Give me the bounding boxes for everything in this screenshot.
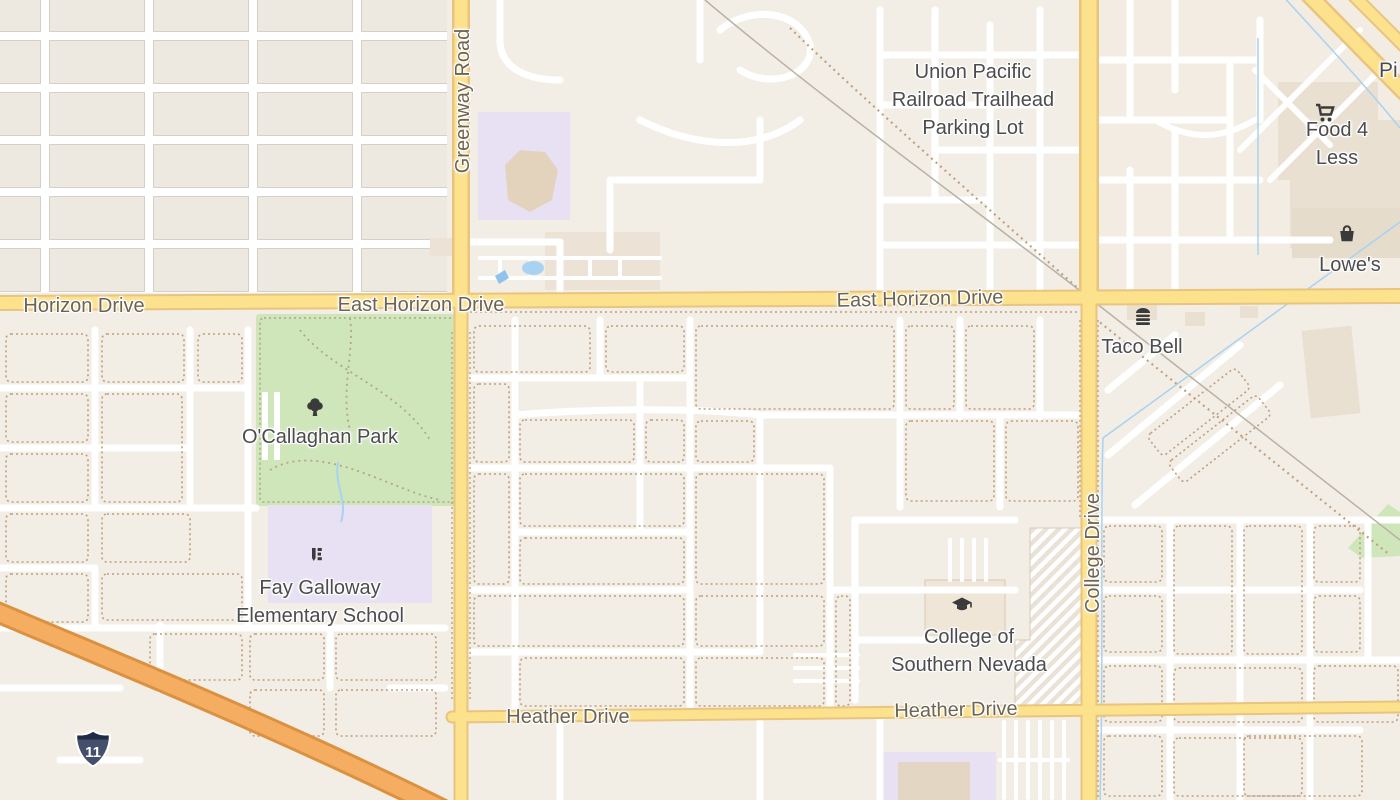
poi-label-csn[interactable]: College of Southern Nevada — [891, 623, 1047, 679]
poi-label-fay-galloway[interactable]: Fay Galloway Elementary School — [236, 574, 404, 630]
road-label-greenway-road: Greenway Road — [452, 29, 474, 174]
road-label-college-drive: College Drive — [1082, 493, 1104, 613]
burger-icon[interactable] — [1136, 308, 1150, 325]
road-label-east-horizon-1: East Horizon Drive — [338, 294, 505, 316]
poi-label-taco-bell[interactable]: Taco Bell — [1101, 333, 1182, 361]
poi-label-lowes[interactable]: Lowe's — [1319, 251, 1381, 279]
map-canvas[interactable]: 11 — [0, 0, 1400, 800]
shield-number: 11 — [85, 744, 101, 761]
horizon-drive-road — [0, 296, 1400, 303]
poi-label-food-4-less[interactable]: Food 4 Less — [1306, 116, 1369, 172]
pond — [522, 261, 544, 275]
map-viewport[interactable]: 11 Horizon Drive East Horizon Drive East… — [0, 0, 1400, 800]
park-area — [256, 314, 468, 506]
road-label-heather-1: Heather Drive — [506, 706, 629, 728]
poi-label-union-pacific[interactable]: Union Pacific Railroad Trailhead Parking… — [892, 58, 1054, 142]
interstate-11-road — [0, 610, 448, 800]
poi-label-partial[interactable]: Pi — [1379, 57, 1398, 85]
poi-label-ocallaghan-park[interactable]: O'Callaghan Park — [242, 423, 398, 451]
road-label-east-horizon-2: East Horizon Drive — [836, 286, 1003, 311]
mobile-home-grid-area — [0, 0, 447, 293]
road-label-horizon-drive: Horizon Drive — [23, 295, 144, 317]
road-label-heather-2: Heather Drive — [894, 698, 1018, 723]
